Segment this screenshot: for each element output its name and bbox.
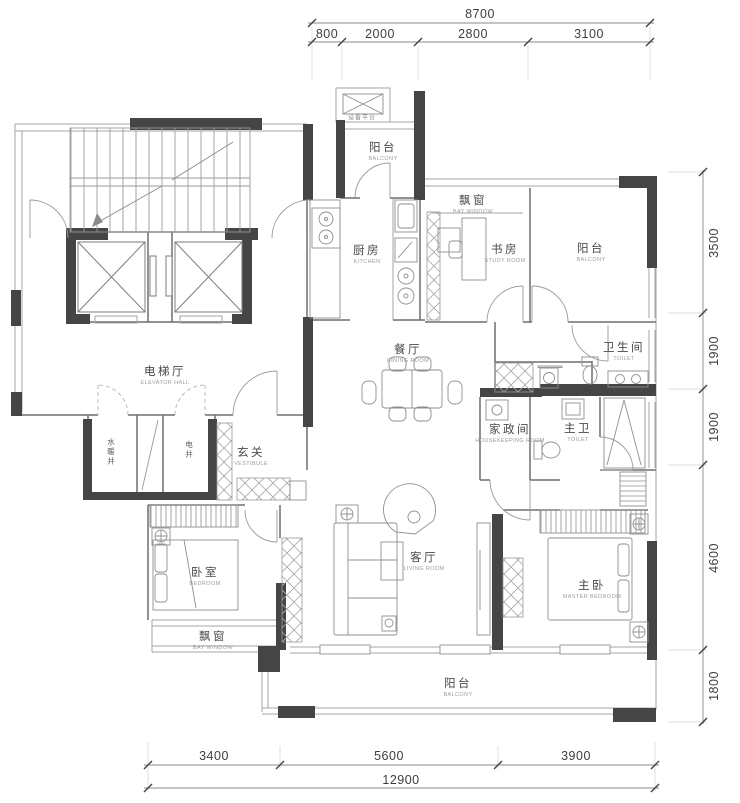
elevators (78, 242, 242, 323)
dim-right-seg-4: 1800 (707, 671, 721, 701)
dim-bottom-seg-1: 5600 (374, 749, 404, 763)
dim-bottom-seg-2: 3900 (561, 749, 591, 763)
room-label-water-heating-shaft: 水暖井 (106, 438, 117, 467)
dim-top-seg-1: 2000 (365, 27, 395, 41)
dim-top-seg-0: 800 (316, 27, 338, 41)
dim-right-seg-1: 1900 (707, 336, 721, 366)
room-label-equipment-platform: 设备平台 (348, 113, 376, 122)
dim-bottom-total: 12900 (382, 773, 419, 787)
dim-top-seg-3: 3100 (574, 27, 604, 41)
dim-right-seg-0: 3500 (707, 228, 721, 258)
door-swings-dashed (98, 385, 205, 415)
dim-top-total: 8700 (465, 7, 495, 21)
dim-right-seg-3: 4600 (707, 543, 721, 573)
dim-top-seg-2: 2800 (458, 27, 488, 41)
floor-plan-page: 阳台 BALCONY 厨房 KITCHEN 飘窗 BAY WINDOW 书房 S… (0, 0, 740, 803)
dim-bottom-seg-0: 3400 (199, 749, 229, 763)
dim-right-seg-2: 1900 (707, 412, 721, 442)
room-label-electric-shaft: 电井 (184, 441, 195, 460)
